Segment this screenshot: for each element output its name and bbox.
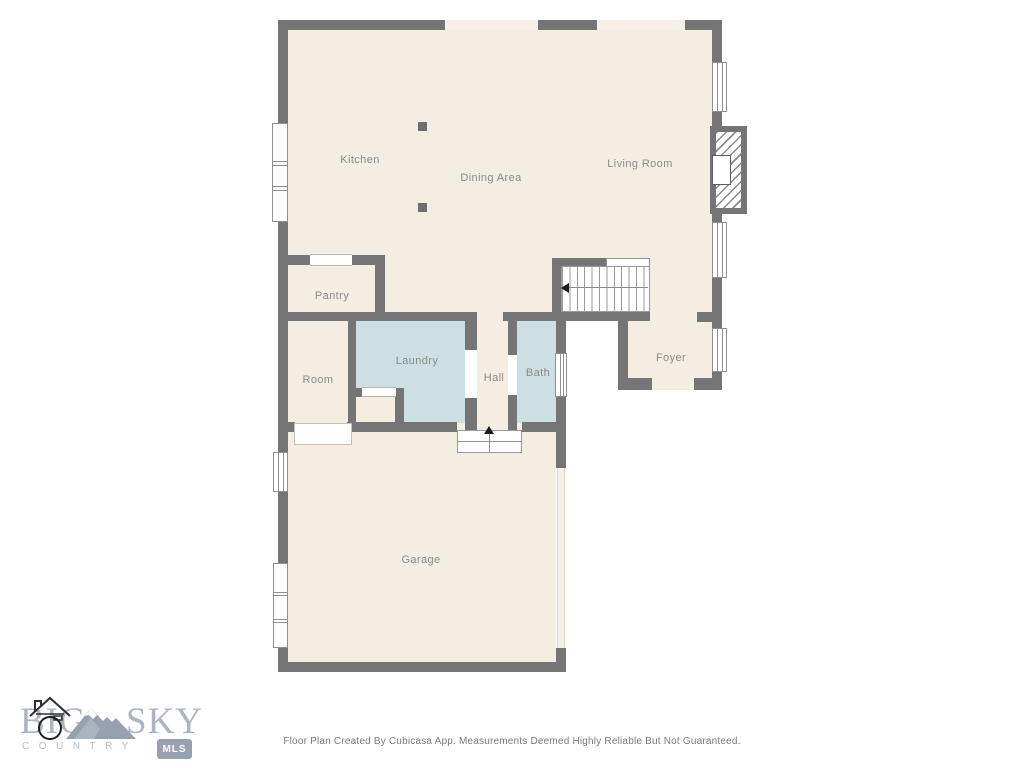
door-opening bbox=[508, 355, 517, 395]
wall bbox=[538, 20, 597, 30]
window bbox=[273, 452, 288, 492]
room-label-living-room: Living Room bbox=[607, 158, 673, 170]
wall bbox=[278, 662, 566, 672]
wall bbox=[278, 20, 288, 123]
fireplace-firebox bbox=[712, 155, 731, 185]
wall bbox=[694, 378, 722, 390]
window bbox=[555, 353, 567, 397]
garage-door-opening bbox=[557, 468, 565, 648]
window bbox=[712, 62, 727, 112]
wall bbox=[552, 258, 608, 266]
room-label-pantry: Pantry bbox=[315, 290, 349, 302]
wall bbox=[278, 492, 288, 563]
room-label-hall: Hall bbox=[484, 372, 505, 384]
room-label-room: Room bbox=[303, 374, 334, 386]
column-post bbox=[418, 203, 427, 212]
wall bbox=[465, 398, 477, 432]
room-label-laundry: Laundry bbox=[396, 355, 439, 367]
wall bbox=[278, 20, 445, 30]
floor-garage bbox=[288, 430, 556, 663]
window bbox=[272, 123, 288, 222]
stairs-run-line bbox=[563, 287, 648, 288]
door-opening bbox=[465, 350, 477, 398]
footer-disclaimer: Floor Plan Created By Cubicasa App. Meas… bbox=[0, 736, 1024, 747]
wall bbox=[556, 397, 566, 468]
room-label-garage: Garage bbox=[401, 554, 440, 566]
stairs-direction-arrow bbox=[561, 283, 569, 293]
wall bbox=[375, 255, 385, 313]
window bbox=[273, 563, 288, 648]
wall bbox=[712, 20, 722, 62]
door-opening bbox=[310, 254, 352, 266]
wall bbox=[556, 648, 566, 672]
wall bbox=[522, 422, 566, 432]
wall bbox=[348, 313, 356, 423]
door-opening bbox=[294, 423, 352, 445]
wall bbox=[348, 388, 363, 397]
floor-room bbox=[288, 313, 348, 423]
wall bbox=[618, 378, 652, 390]
window-opening bbox=[445, 20, 538, 30]
stairs bbox=[561, 266, 650, 312]
wall bbox=[697, 312, 722, 322]
room-label-dining-area: Dining Area bbox=[460, 172, 521, 184]
entry-steps-arrow bbox=[484, 426, 494, 434]
window-opening bbox=[597, 20, 685, 30]
floor-plan-page: Kitchen Dining Area Living Room Pantry R… bbox=[0, 0, 1024, 768]
wall bbox=[278, 422, 295, 432]
room-label-foyer: Foyer bbox=[656, 352, 686, 364]
wall bbox=[465, 313, 477, 350]
column-post bbox=[418, 122, 427, 131]
door-opening bbox=[362, 387, 396, 397]
floor-foyer bbox=[628, 320, 712, 382]
window bbox=[712, 222, 727, 278]
wall bbox=[347, 422, 457, 432]
wall bbox=[278, 312, 477, 321]
wall bbox=[508, 313, 517, 355]
floor-foyer-bottom-opening bbox=[652, 378, 694, 390]
room-label-bath: Bath bbox=[526, 367, 550, 379]
wall bbox=[508, 395, 517, 432]
front-door-window bbox=[712, 328, 727, 372]
wall bbox=[278, 255, 310, 265]
wall bbox=[552, 258, 561, 320]
wall bbox=[556, 313, 566, 353]
room-label-kitchen: Kitchen bbox=[340, 154, 380, 166]
